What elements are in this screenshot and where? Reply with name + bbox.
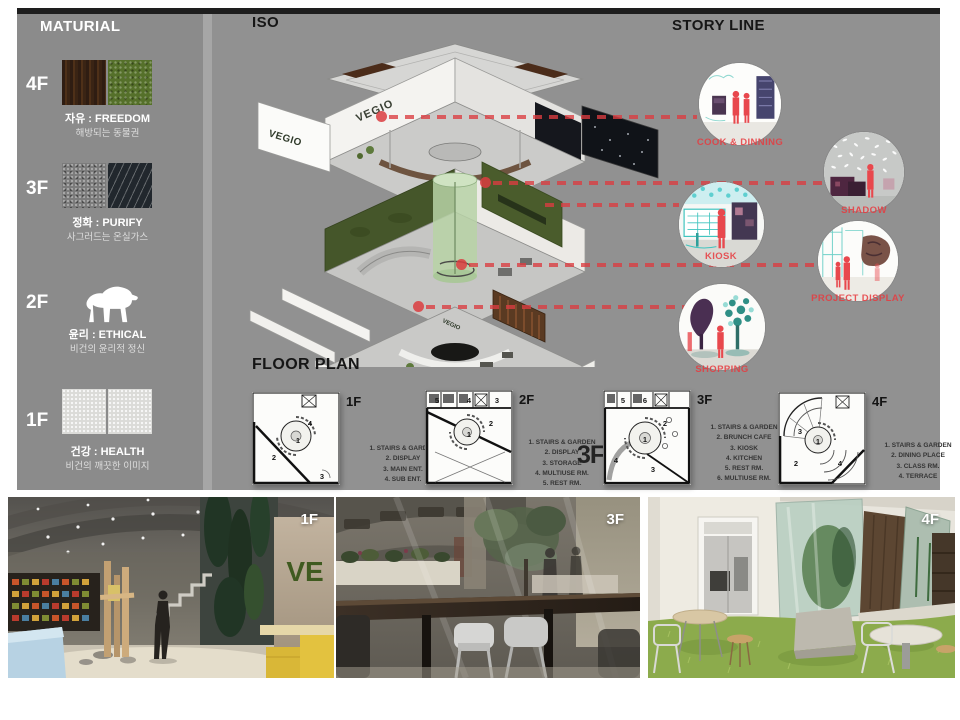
sidebar-floor-1f: 1F (26, 410, 48, 432)
render-photo-4f: 4F (648, 497, 955, 678)
svg-text:1: 1 (467, 430, 471, 439)
material-desc-1f: 비건의 깨끗한 이미지 (40, 458, 175, 472)
svg-text:5: 5 (621, 396, 625, 405)
concrete-swatch (62, 163, 106, 208)
storyline-connector (493, 181, 823, 185)
ve-sign-text: VE (286, 556, 323, 587)
svg-text:2: 2 (489, 419, 493, 428)
material-theme-2f: 윤리 : ETHICAL (40, 326, 175, 342)
sidebar-floor-3f: 3F (26, 178, 48, 200)
floorplan-label-2f: 2F (519, 392, 534, 407)
sidebar-floor-2f: 2F (26, 292, 48, 314)
rain-streak-swatch (108, 163, 152, 208)
scene-cook-dinning (699, 63, 781, 145)
render-photo-1f: VE 1F (8, 497, 334, 678)
render-photo-3f: 3F (336, 497, 640, 678)
floorplan-label-3f: 3F (697, 392, 712, 407)
scene-shadow (824, 132, 904, 212)
scene-label-project-display: PROJECT DISPLAY (778, 293, 938, 304)
material-desc-3f: 사그러드는 온실가스 (40, 229, 175, 243)
svg-text:2: 2 (663, 419, 667, 428)
material-theme-4f: 자유 : FREEDOM (40, 110, 175, 126)
material-desc-4f: 해방되는 동물권 (40, 125, 175, 139)
presentation-board: MATURIAL 4F 자유 : FREEDOM 해방되는 동물권 3F 정화 … (0, 0, 960, 720)
svg-text:3: 3 (798, 427, 802, 436)
photo-floor-label: 1F (300, 511, 318, 528)
terrace-render (648, 497, 955, 678)
floorplan-legend-4f: 1. STAIRS & GARDEN 2. DINING PLACE 3. CL… (868, 441, 960, 482)
plaster-swatch (108, 389, 152, 434)
floorplan-label-4f: 4F (872, 394, 887, 409)
scene-project-display (818, 221, 898, 301)
floorplan-1f: 1 2 3 4 (252, 392, 340, 485)
storyline-connector (389, 115, 697, 119)
material-swatches-3f (62, 163, 152, 208)
material-swatches-1f (62, 389, 152, 434)
storyline-marker-dot (480, 177, 491, 188)
floorplan-3f: 1 2 3 4 5 6 (603, 390, 691, 485)
svg-text:3: 3 (651, 465, 655, 474)
storyline-title: STORY LINE (672, 17, 765, 34)
storyline-connector (426, 305, 687, 309)
svg-text:3: 3 (320, 472, 324, 481)
storyline-marker-dot (376, 111, 387, 122)
scene-label-shadow: SHADOW (784, 205, 944, 216)
wood-swatch (62, 60, 106, 105)
cook-dinning-illustration (699, 63, 781, 145)
scene-shopping (679, 284, 765, 370)
exploded-axonometric-drawing: VEGIO VEGIO (230, 22, 680, 367)
svg-text:2: 2 (794, 459, 798, 468)
material-swatches-4f (62, 60, 152, 105)
floorplan-title: FLOOR PLAN (252, 356, 360, 374)
svg-text:2: 2 (272, 453, 276, 462)
storyline-connector (469, 263, 818, 267)
storyline-marker-dot (413, 301, 424, 312)
shadow-illustration (824, 132, 904, 212)
floorplan-4f: 1 2 3 4 (778, 392, 866, 485)
material-theme-1f: 건강 : HEALTH (40, 443, 175, 459)
floorplan-2f: 1 2 3 4 5 (425, 390, 513, 485)
scene-label-cook-dinning: COOK & DINNING (660, 137, 820, 148)
storyline-connector (545, 203, 679, 207)
floorplan-label-1f: 1F (346, 394, 361, 409)
project-display-illustration (818, 221, 898, 301)
sidebar-floor-4f: 4F (26, 74, 48, 96)
floorplan-big-label-3f: 3F (577, 441, 604, 470)
svg-text:1: 1 (816, 437, 820, 446)
svg-text:6: 6 (643, 396, 647, 405)
storyline-marker-dot (456, 259, 467, 270)
svg-text:1: 1 (643, 435, 647, 444)
grass-swatch (108, 60, 152, 105)
lobby-render: VE (8, 497, 334, 678)
photo-floor-label: 4F (921, 511, 939, 528)
vegio-sign-panel: VEGIO (258, 102, 330, 172)
svg-text:3: 3 (495, 396, 499, 405)
shopping-illustration (679, 284, 765, 370)
polar-bear-icon (80, 284, 142, 326)
materials-title: MATURIAL (40, 18, 120, 35)
scene-label-kiosk: KIOSK (641, 251, 801, 262)
material-desc-2f: 비건의 윤리적 정신 (40, 341, 175, 355)
plaster-swatch (62, 389, 106, 434)
scene-label-shopping: SHOPPING (642, 364, 802, 375)
svg-text:1: 1 (296, 436, 300, 445)
cafe-render (336, 497, 640, 678)
sidebar-divider (203, 14, 212, 490)
photo-floor-label: 3F (606, 511, 624, 528)
svg-text:5: 5 (435, 396, 439, 405)
material-theme-3f: 정화 : PURIFY (40, 214, 175, 230)
